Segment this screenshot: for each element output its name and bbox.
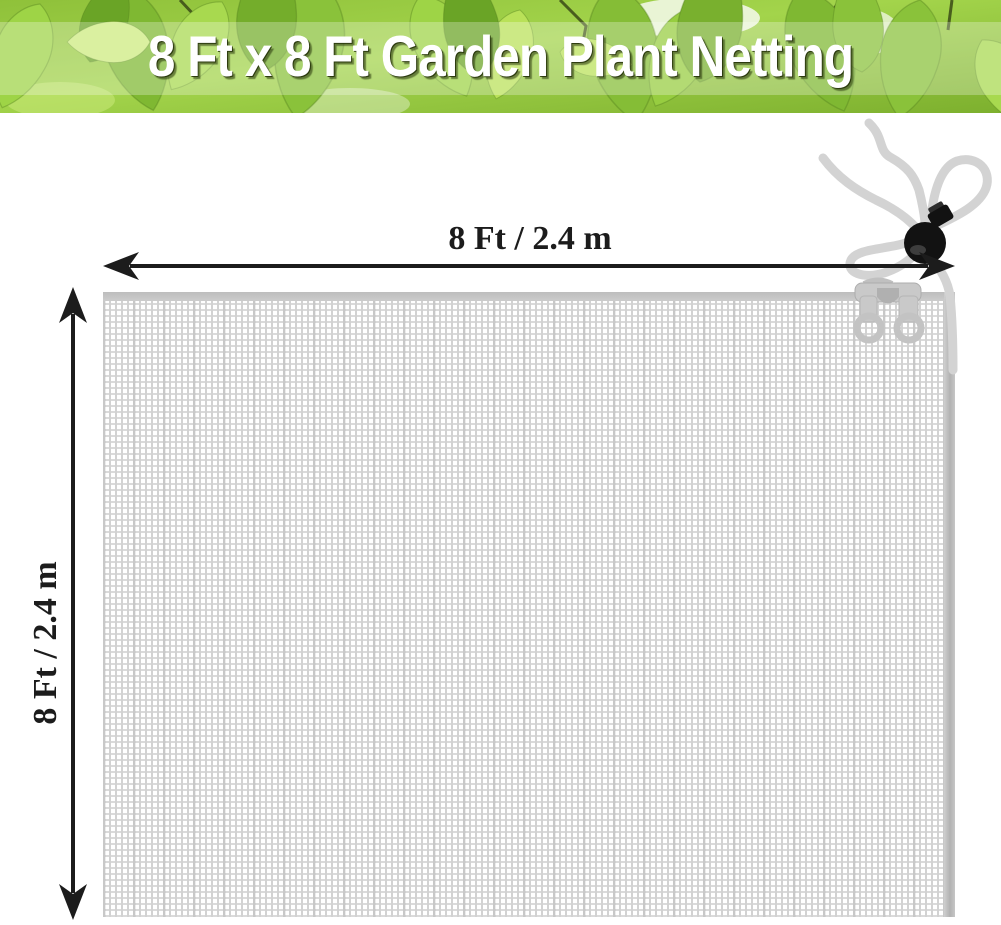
- netting-right-edge: [944, 292, 955, 917]
- product-image: 8 Ft x 8 Ft Garden Plant Netting: [0, 0, 1001, 925]
- cord-lock-toggle-icon: [904, 199, 955, 264]
- netting-top-edge: [103, 292, 955, 301]
- netting-mesh: [103, 292, 955, 917]
- dimension-diagram: 8 Ft / 2.4 m 8 Ft / 2.4 m: [0, 0, 1001, 925]
- height-dimension-label: 8 Ft / 2.4 m: [27, 561, 65, 724]
- width-dimension-label: 8 Ft / 2.4 m: [448, 220, 611, 258]
